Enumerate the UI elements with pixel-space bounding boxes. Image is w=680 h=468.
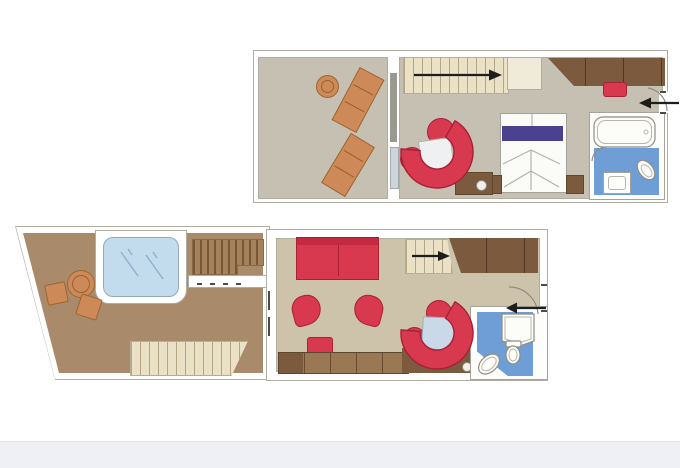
lounger-seam xyxy=(335,165,354,177)
wood-deck-steps xyxy=(192,239,264,266)
deck-chair xyxy=(44,281,69,306)
double-bed xyxy=(500,113,567,193)
washbasin xyxy=(608,176,626,190)
wood-deck-steps-lower xyxy=(192,264,238,275)
hot-tub xyxy=(103,237,179,297)
terrace-window-wall xyxy=(188,275,268,288)
nightstand-right xyxy=(566,175,584,194)
round-side-table xyxy=(316,75,339,98)
square-coffee-table xyxy=(418,137,455,174)
upper-staircase xyxy=(403,57,509,94)
cabinet-knob xyxy=(476,180,487,191)
floorplan-page xyxy=(0,0,680,468)
footer-band xyxy=(0,441,680,468)
washbasin-counter xyxy=(603,172,631,194)
glass-pane xyxy=(390,147,399,189)
glass-door-frame xyxy=(390,73,397,142)
terrace-staircase xyxy=(130,341,248,376)
red-sofa xyxy=(296,237,379,280)
lower-wardrobe xyxy=(449,238,538,273)
lounger-seam xyxy=(353,85,373,96)
square-dining-table xyxy=(421,316,456,351)
bed-pillow-band xyxy=(502,126,563,141)
table-ring xyxy=(72,275,90,293)
sideboard-cabinet xyxy=(279,353,303,373)
sideboard xyxy=(278,352,409,374)
red-stool xyxy=(603,82,627,97)
minibar-cabinet xyxy=(455,172,493,195)
sofa-back xyxy=(297,238,378,245)
lounger-seam xyxy=(345,101,365,112)
lower-staircase xyxy=(405,239,453,274)
table-ring xyxy=(321,80,334,93)
lounger-seam xyxy=(344,150,363,162)
upper-entry-gap xyxy=(659,92,668,113)
stair-landing xyxy=(507,57,542,90)
sofa-seam xyxy=(338,245,339,276)
